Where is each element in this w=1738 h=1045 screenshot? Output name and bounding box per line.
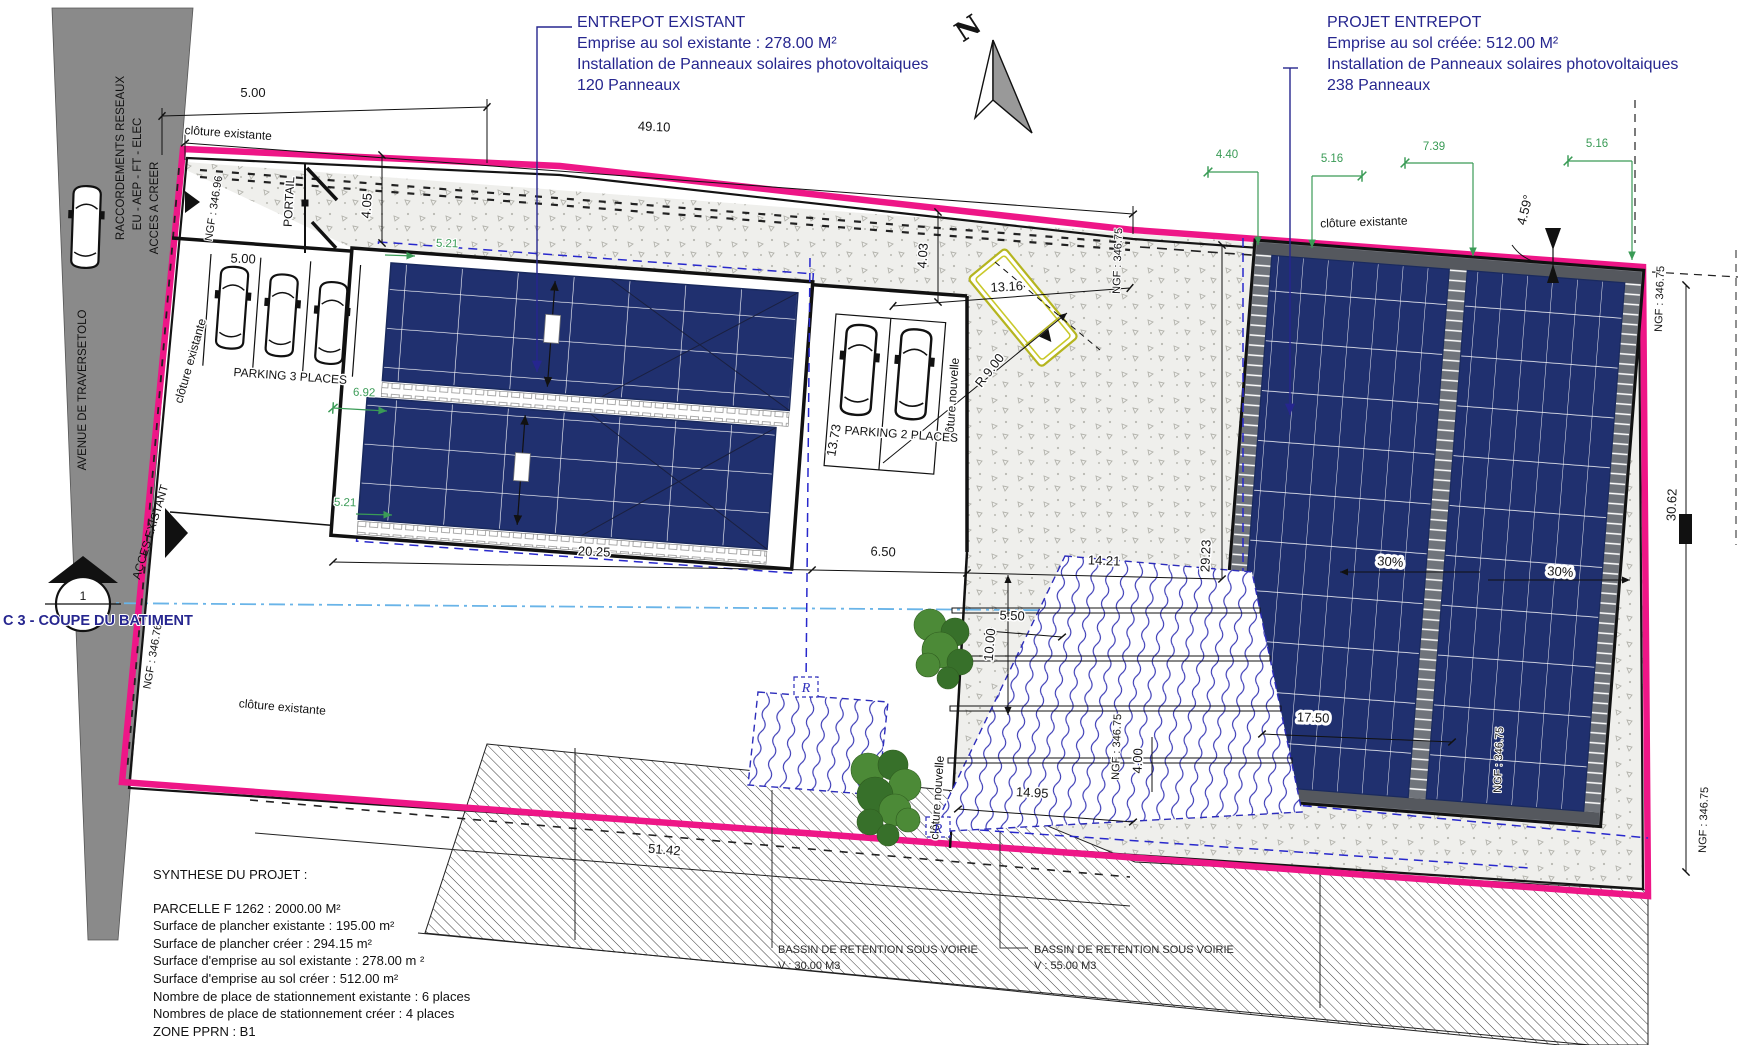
- plan-label: R: [801, 681, 811, 696]
- plan-label: 30.62: [1663, 488, 1679, 521]
- title-block-existing-line: 120 Panneaux: [577, 75, 928, 96]
- title-block-existing-line: Installation de Panneaux solaires photov…: [577, 54, 928, 75]
- plan-label: BASSIN DE RETENTION SOUS VOIRIE: [1034, 944, 1234, 956]
- plan-label: PORTAIL: [281, 176, 298, 227]
- plan-label: 5.16: [1321, 153, 1343, 165]
- title-block-existing-line: ENTREPOT EXISTANT: [577, 12, 928, 33]
- plan-label: NGF : 346.75: [1110, 714, 1124, 780]
- plan-label: 30%: [1377, 553, 1404, 570]
- plan-label: 14.95: [1016, 784, 1049, 801]
- plan-label: 17.50: [1297, 709, 1330, 725]
- existing-warehouse: [331, 240, 814, 573]
- plan-label: 30%: [1547, 563, 1574, 580]
- plan-label: 4.05: [358, 193, 375, 219]
- plan-label: 13.16: [990, 278, 1023, 295]
- plan-label: NGF : 346.75: [1697, 787, 1711, 853]
- title-block-project-line: PROJET ENTREPOT: [1327, 12, 1678, 33]
- synthesis-title: SYNTHESE DU PROJET :: [153, 866, 470, 884]
- plan-label: 5.00: [240, 85, 265, 100]
- plan-label: 4.40: [1216, 149, 1238, 161]
- plan-label: AVENUE DE TRAVERSETOLO: [77, 310, 89, 471]
- synthesis-block: SYNTHESE DU PROJET : PARCELLE F 1262 : 2…: [153, 866, 470, 1040]
- synthesis-line: Surface d'emprise au sol créer : 512.00 …: [153, 970, 470, 988]
- title-block-project-line: Installation de Panneaux solaires photov…: [1327, 54, 1678, 75]
- synthesis-line: Surface d'emprise au sol existante : 278…: [153, 952, 470, 970]
- plan-label: BASSIN DE RETENTION SOUS VOIRIE: [778, 944, 978, 956]
- title-block-project-line: Emprise au sol créée: 512.00 M²: [1327, 33, 1678, 54]
- plan-label: 6.50: [870, 544, 896, 560]
- plan-label: 5.21: [436, 238, 459, 251]
- plan-label: 14.21: [1088, 552, 1121, 568]
- plan-label: 1: [80, 589, 87, 603]
- synthesis-line: ZONE PPRN : B1: [153, 1023, 470, 1041]
- plan-label: NGF : 346.75: [1492, 727, 1506, 793]
- plan-label: 51.42: [648, 841, 682, 859]
- synthesis-line: Surface de plancher existante : 195.00 m…: [153, 917, 470, 935]
- plan-label: V : 55.00 M3: [1034, 960, 1096, 972]
- synthesis-line: Surface de plancher créer : 294.15 m²: [153, 935, 470, 953]
- plan-label: 5.50: [999, 608, 1025, 624]
- plan-label: 29.23: [1197, 539, 1213, 572]
- car-icon: [66, 185, 105, 268]
- plan-label: 10.00: [981, 628, 999, 662]
- plan-label: 20.25: [578, 543, 611, 559]
- synthesis-line: PARCELLE F 1262 : 2000.00 M²: [153, 900, 470, 918]
- parking-2-places: [824, 314, 946, 474]
- site-plan: 5.0049.105.004.054.0313.16R 9.0013.7320.…: [0, 0, 1738, 1045]
- synthesis-lines: PARCELLE F 1262 : 2000.00 M²Surface de p…: [153, 900, 470, 1041]
- plan-label: NGF : 346.75: [1653, 266, 1667, 332]
- plan-label: 6.92: [353, 387, 376, 400]
- plan-label: NGF : 346.75: [1111, 228, 1125, 294]
- plan-label: EU - AEP - FT - ELEC: [132, 118, 144, 231]
- section-end-marker: [1679, 514, 1692, 544]
- plan-label: 7.39: [1423, 141, 1445, 153]
- synthesis-line: Nombre de place de stationnement existan…: [153, 988, 470, 1006]
- plan-label: C 3 - COUPE DU BATIMENT: [3, 613, 193, 629]
- plan-label: V : 30.00 M3: [778, 960, 840, 972]
- plan-label: 4.00: [1130, 748, 1146, 774]
- plan-label: RACCORDEMENTS RESEAUX: [115, 76, 127, 241]
- plan-label: 5.16: [1586, 138, 1608, 150]
- plan-label: 49.10: [638, 118, 671, 134]
- title-block-project-line: 238 Panneaux: [1327, 75, 1678, 96]
- title-block-existing: ENTREPOT EXISTANTEmprise au sol existant…: [577, 12, 928, 96]
- plan-label: R: [933, 822, 943, 837]
- plan-label: ACCES A CREER: [149, 162, 161, 255]
- title-block-project: PROJET ENTREPOTEmprise au sol créée: 512…: [1327, 12, 1678, 96]
- plan-label: 5.21: [334, 497, 357, 510]
- synthesis-line: Nombres de place de stationnement créer …: [153, 1005, 470, 1023]
- plan-label: 4.03: [914, 243, 931, 269]
- plan-label: 5.00: [230, 251, 256, 267]
- title-block-existing-line: Emprise au sol existante : 278.00 M²: [577, 33, 928, 54]
